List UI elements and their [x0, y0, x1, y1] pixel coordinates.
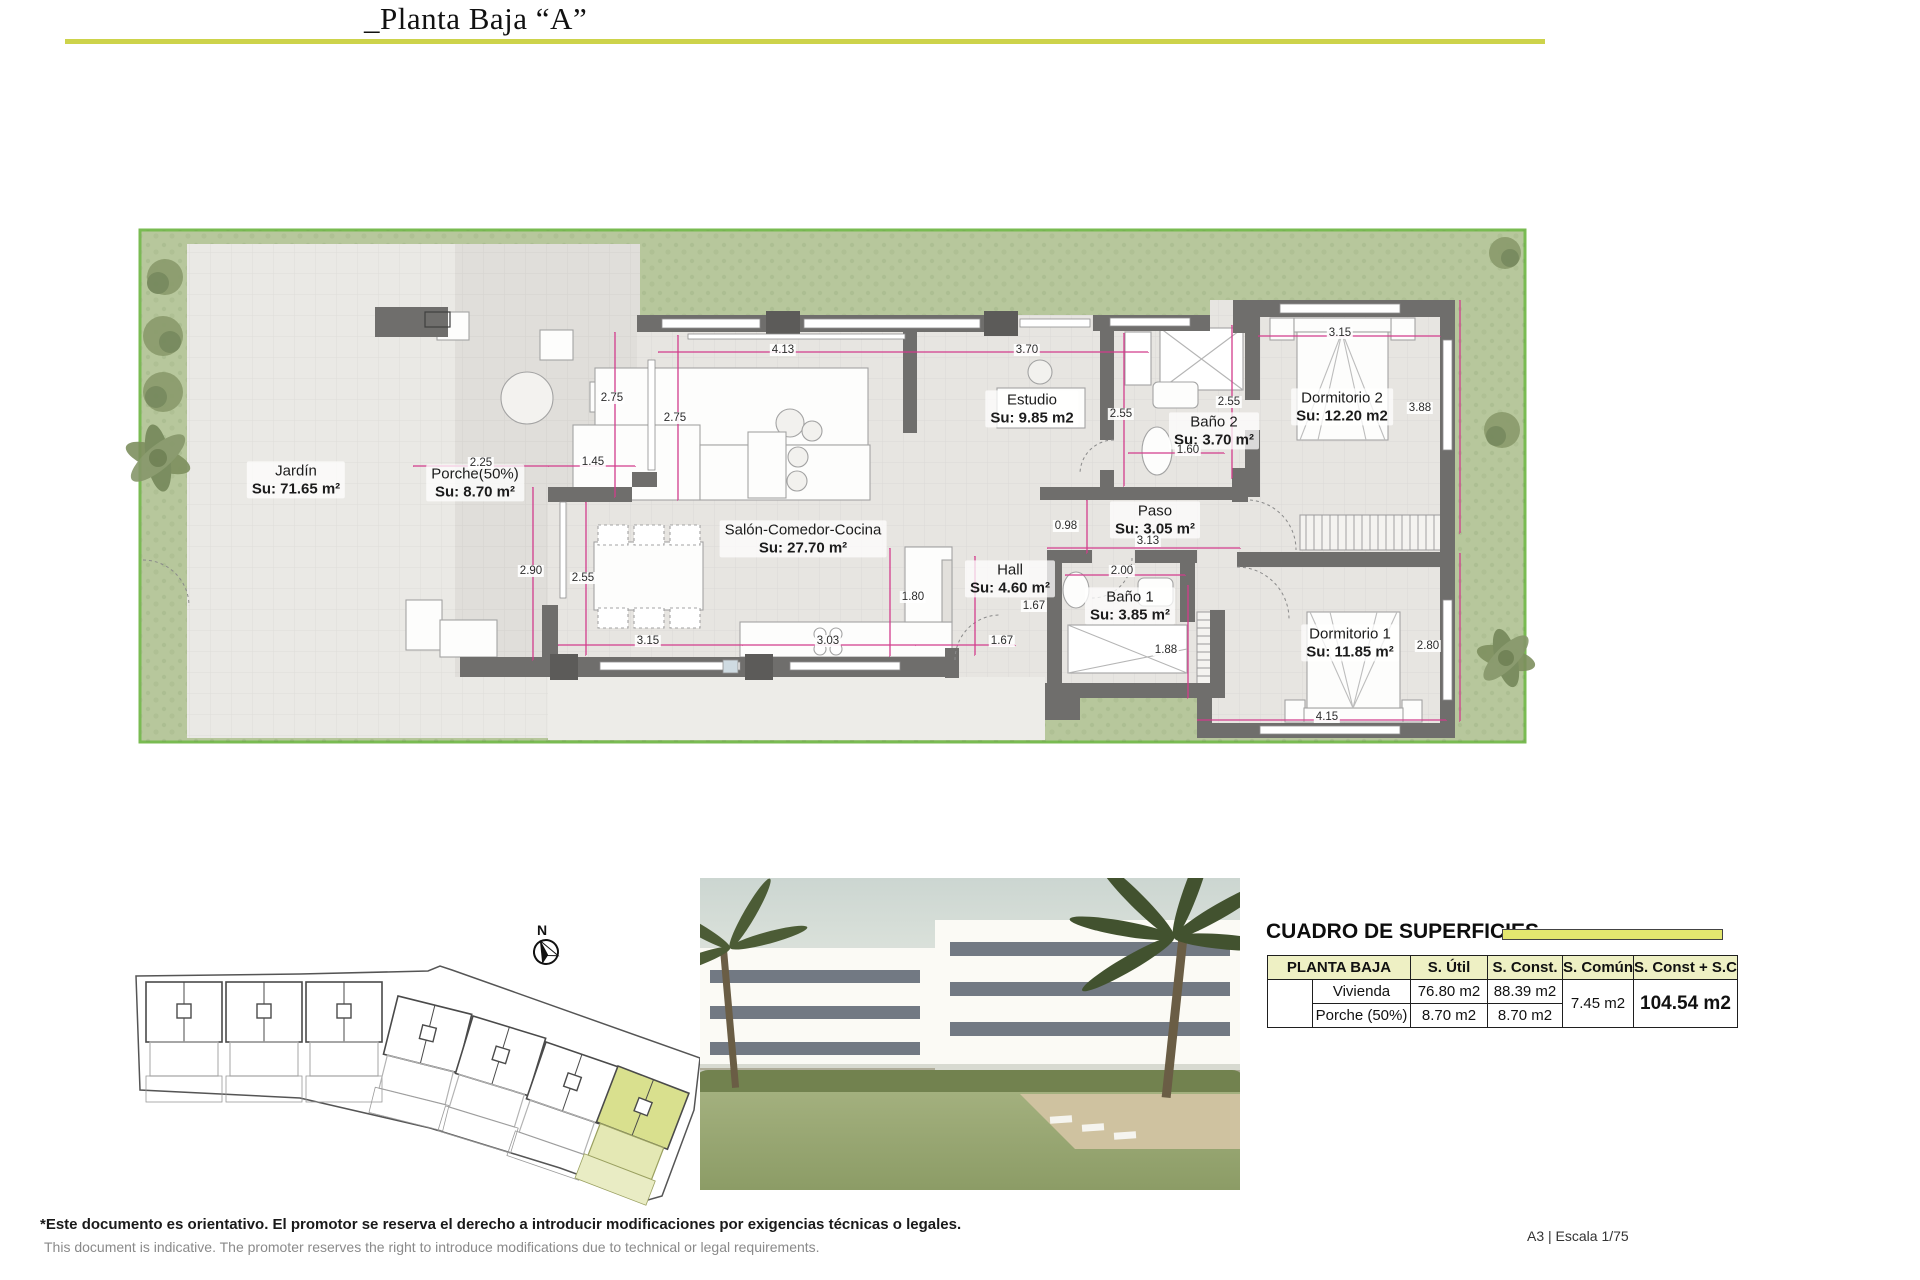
dim-label: 2.00 — [1109, 565, 1135, 577]
room-label-paso: PasoSu: 3.05 m² — [1110, 501, 1200, 538]
dim-label: 3.03 — [815, 635, 841, 647]
room-label-jardin: JardínSu: 71.65 m² — [247, 461, 345, 498]
wardrobe-hatch — [1300, 515, 1443, 550]
dim-label: 1.67 — [1021, 600, 1047, 612]
north-arrow-icon — [529, 935, 562, 968]
vivienda-const: 88.39 m2 — [1488, 980, 1563, 1004]
porche-const: 8.70 m2 — [1488, 1004, 1563, 1028]
dim-label: 3.70 — [1014, 344, 1040, 356]
room-label-dorm1: Dormitorio 1Su: 11.85 m² — [1301, 624, 1399, 661]
spacer-cell — [1268, 980, 1313, 1028]
dim-label: 1.60 — [1175, 444, 1201, 456]
porche-util: 8.70 m2 — [1411, 1004, 1488, 1028]
dim-label: 2.25 — [468, 457, 494, 469]
room-label-dorm2: Dormitorio 2Su: 12.20 m2 — [1291, 388, 1393, 425]
dim-label: 2.75 — [662, 412, 688, 424]
room-label-estudio: EstudioSu: 9.85 m2 — [985, 390, 1078, 427]
table-row: Vivienda 76.80 m2 88.39 m2 7.45 m2 104.5… — [1268, 980, 1738, 1004]
room-label-salon: Salón-Comedor-CocinaSu: 27.70 m² — [720, 520, 887, 557]
dim-label: 3.88 — [1407, 402, 1433, 414]
pergola — [375, 307, 450, 337]
dim-label: 3.15 — [1327, 327, 1353, 339]
dim-label: 1.67 — [989, 635, 1015, 647]
row-label-vivienda: Vivienda — [1313, 980, 1411, 1004]
disclaimer-es: *Este documento es orientativo. El promo… — [40, 1216, 961, 1233]
surfaces-table: PLANTA BAJA S. Útil S. Const. S. Común S… — [1267, 955, 1738, 1028]
dim-label: 4.15 — [1314, 711, 1340, 723]
disclaimer-en: This document is indicative. The promote… — [44, 1239, 820, 1255]
surfaces-title-bar — [1502, 929, 1723, 940]
room-label-hall: HallSu: 4.60 m² — [965, 560, 1055, 597]
vivienda-util: 76.80 m2 — [1411, 980, 1488, 1004]
sheet-scale: A3 | Escala 1/75 — [1527, 1228, 1629, 1244]
room-label-bano1: Baño 1Su: 3.85 m² — [1085, 587, 1175, 624]
dim-label: 3.13 — [1135, 535, 1161, 547]
col-s-const-sc: S. Const + S.C — [1634, 956, 1738, 980]
dim-label: 1.88 — [1153, 644, 1179, 656]
dim-label: 1.45 — [580, 456, 606, 468]
col-s-const: S. Const. — [1488, 956, 1563, 980]
north-label: N — [537, 922, 547, 938]
dim-label: 2.55 — [570, 572, 596, 584]
col-s-comun: S. Común — [1563, 956, 1634, 980]
col-planta-baja: PLANTA BAJA — [1268, 956, 1411, 980]
total-value: 104.54 m2 — [1634, 980, 1738, 1028]
dim-label: 2.80 — [1415, 640, 1441, 652]
comun-value: 7.45 m2 — [1563, 980, 1634, 1028]
site-plan — [136, 966, 700, 1205]
dim-label: 0.98 — [1053, 520, 1079, 532]
col-s-util: S. Útil — [1411, 956, 1488, 980]
dim-label: 4.13 — [770, 344, 796, 356]
dim-label: 3.15 — [635, 635, 661, 647]
dim-label: 2.55 — [1108, 408, 1134, 420]
dim-label: 2.55 — [1216, 396, 1242, 408]
render-photo — [700, 878, 1240, 1190]
surfaces-title: CUADRO DE SUPERFICIES — [1266, 920, 1539, 944]
dim-label: 2.90 — [518, 565, 544, 577]
row-label-porche: Porche (50%) — [1313, 1004, 1411, 1028]
dim-label: 1.80 — [900, 591, 926, 603]
plan-sheet: _Planta Baja “A” — [0, 0, 1920, 1280]
dim-label: 2.75 — [599, 392, 625, 404]
surfaces-header-row: PLANTA BAJA S. Útil S. Const. S. Común S… — [1268, 956, 1738, 980]
room-label-porche: Porche(50%)Su: 8.70 m² — [426, 464, 524, 501]
